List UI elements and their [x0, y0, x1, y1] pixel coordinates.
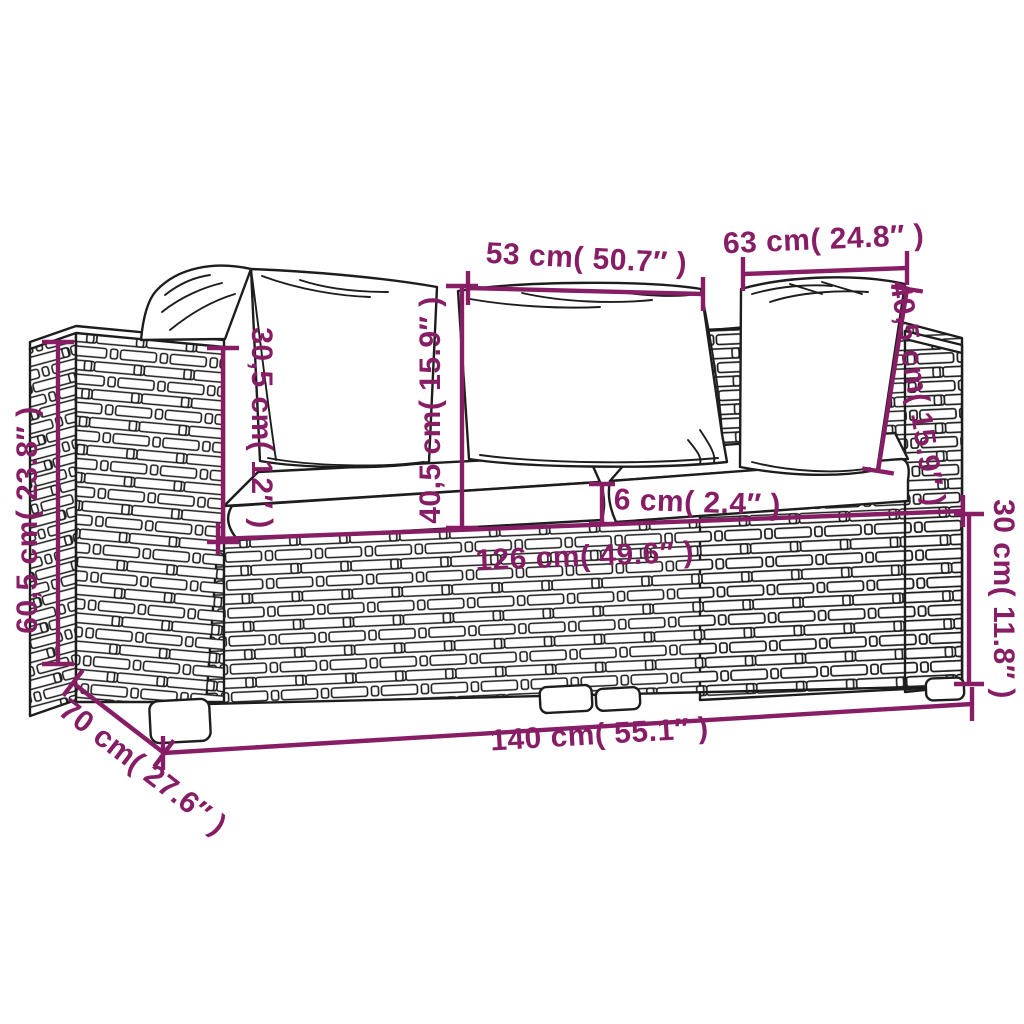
dim-label: 63 cm( 24.8″ ) — [722, 219, 925, 261]
sofa-dimension-diagram: 53 cm( 50.7″ ) 63 cm( 24.8″ ) 60,5 cm( 2… — [0, 0, 1024, 1024]
dim-label: 40,5 cm( 15.9″ ) — [414, 296, 447, 524]
sofa-illustration — [30, 266, 964, 744]
dim-label: 30,5 cm( 12″ ) — [245, 327, 278, 528]
back-pillow-center — [458, 283, 727, 467]
dim-label: 30 cm( 11.8″ ) — [987, 499, 1020, 699]
dim-label: 6 cm( 2.4″ ) — [613, 483, 781, 522]
foot-center-right — [595, 687, 640, 711]
dim-label: 60,5 cm( 23.8″ ) — [11, 406, 44, 634]
left-armrest-front-panel — [76, 332, 224, 702]
foot-left — [149, 698, 211, 743]
dim-base-height: 30 cm( 11.8″ ) — [954, 499, 1020, 699]
foot-center-left — [539, 685, 592, 714]
dim-label: 53 cm( 50.7″ ) — [485, 237, 688, 280]
dim-label: 140 cm( 55.1″ ) — [489, 712, 709, 758]
diagram-canvas: 53 cm( 50.7″ ) 63 cm( 24.8″ ) 60,5 cm( 2… — [0, 0, 1024, 1024]
foot-right — [926, 677, 965, 700]
